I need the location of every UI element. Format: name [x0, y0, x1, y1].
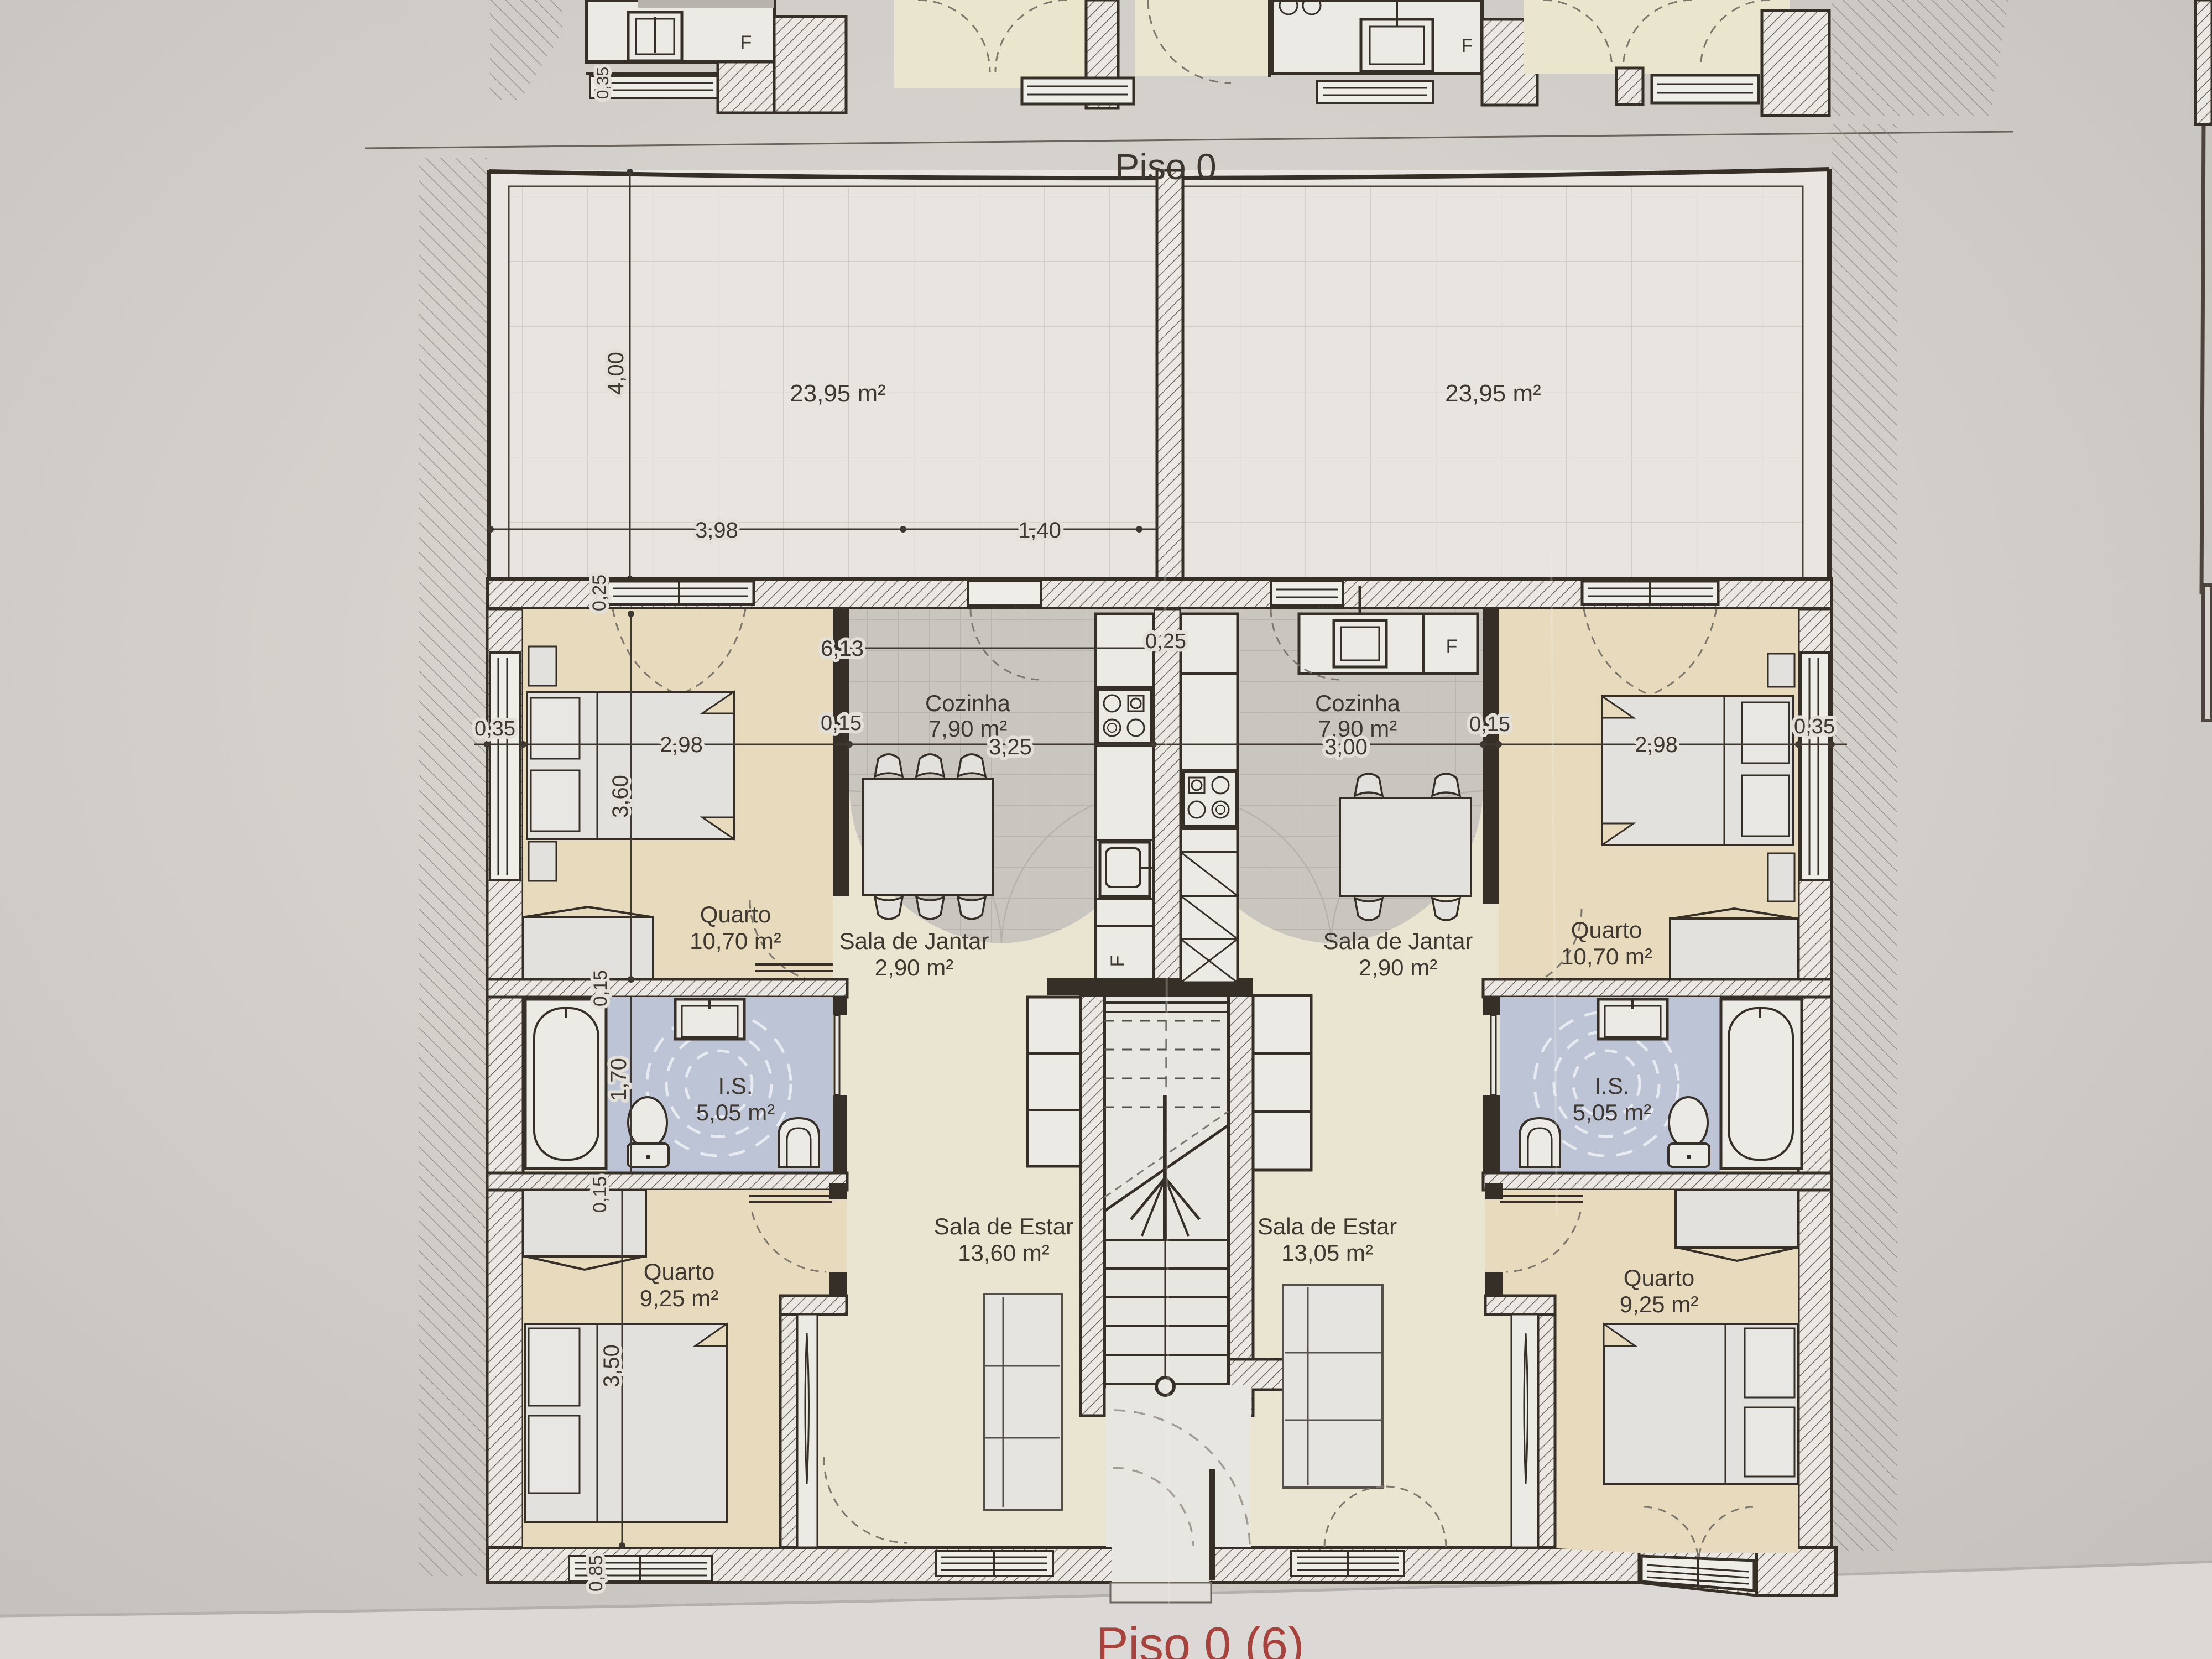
svg-text:2,90 m²: 2,90 m²	[1359, 954, 1437, 980]
svg-text:Piso 0 (6): Piso 0 (6)	[1096, 1617, 1305, 1659]
svg-text:Piso 0: Piso 0	[1115, 146, 1216, 187]
svg-text:F: F	[1446, 636, 1458, 657]
svg-text:1,40: 1,40	[1018, 518, 1061, 542]
svg-text:3,60: 3,60	[608, 775, 633, 818]
svg-text:2,98: 2,98	[660, 733, 703, 757]
svg-text:0,15: 0,15	[590, 970, 611, 1006]
svg-text:5,05 m²: 5,05 m²	[1573, 1099, 1651, 1125]
svg-text:9,25 m²: 9,25 m²	[1620, 1291, 1698, 1317]
svg-text:F: F	[1462, 35, 1473, 56]
svg-text:Sala de Estar: Sala de Estar	[934, 1213, 1073, 1239]
svg-text:Cozinha: Cozinha	[1315, 690, 1401, 716]
svg-text:0,35: 0,35	[474, 717, 515, 740]
svg-text:Quarto: Quarto	[1571, 917, 1642, 943]
svg-text:23,95 m²: 23,95 m²	[790, 380, 886, 407]
svg-text:3,98: 3,98	[695, 518, 738, 542]
svg-text:2,90 m²: 2,90 m²	[875, 954, 953, 980]
svg-text:10,70 m²: 10,70 m²	[690, 928, 781, 954]
svg-text:10,70 m²: 10,70 m²	[1561, 943, 1652, 969]
svg-text:F: F	[1107, 956, 1128, 967]
svg-text:0,25: 0,25	[589, 575, 610, 611]
svg-text:Quarto: Quarto	[700, 901, 771, 927]
svg-text:6,13: 6,13	[821, 637, 864, 661]
svg-text:F: F	[740, 32, 752, 53]
svg-text:23,95 m²: 23,95 m²	[1445, 380, 1541, 407]
svg-text:Quarto: Quarto	[644, 1259, 714, 1285]
svg-text:3,50: 3,50	[599, 1344, 624, 1387]
svg-text:1,70: 1,70	[607, 1058, 631, 1101]
svg-text:I.S.: I.S.	[1594, 1073, 1629, 1099]
svg-text:0,15: 0,15	[1469, 713, 1510, 736]
svg-text:0,85: 0,85	[586, 1555, 607, 1592]
svg-text:I.S.: I.S.	[718, 1073, 753, 1099]
svg-text:5,05 m²: 5,05 m²	[696, 1099, 775, 1125]
svg-text:0,35: 0,35	[594, 67, 612, 99]
svg-text:13,05 m²: 13,05 m²	[1281, 1240, 1373, 1266]
svg-text:9,25 m²: 9,25 m²	[640, 1285, 718, 1311]
svg-text:4,00: 4,00	[604, 352, 628, 395]
svg-text:2,98: 2,98	[1635, 733, 1678, 757]
svg-text:Sala de Jantar: Sala de Jantar	[1323, 928, 1473, 954]
svg-text:Quarto: Quarto	[1624, 1265, 1694, 1291]
svg-text:13,60 m²: 13,60 m²	[958, 1240, 1050, 1266]
svg-text:0,15: 0,15	[589, 1176, 611, 1213]
svg-text:3,00: 3,00	[1324, 735, 1368, 759]
svg-text:3,25: 3,25	[989, 735, 1032, 759]
svg-text:Sala de Jantar: Sala de Jantar	[839, 928, 989, 954]
svg-text:Cozinha: Cozinha	[925, 690, 1011, 716]
svg-text:0,35: 0,35	[1794, 715, 1835, 738]
svg-text:Sala de Estar: Sala de Estar	[1258, 1213, 1397, 1239]
svg-text:0,15: 0,15	[821, 712, 862, 735]
